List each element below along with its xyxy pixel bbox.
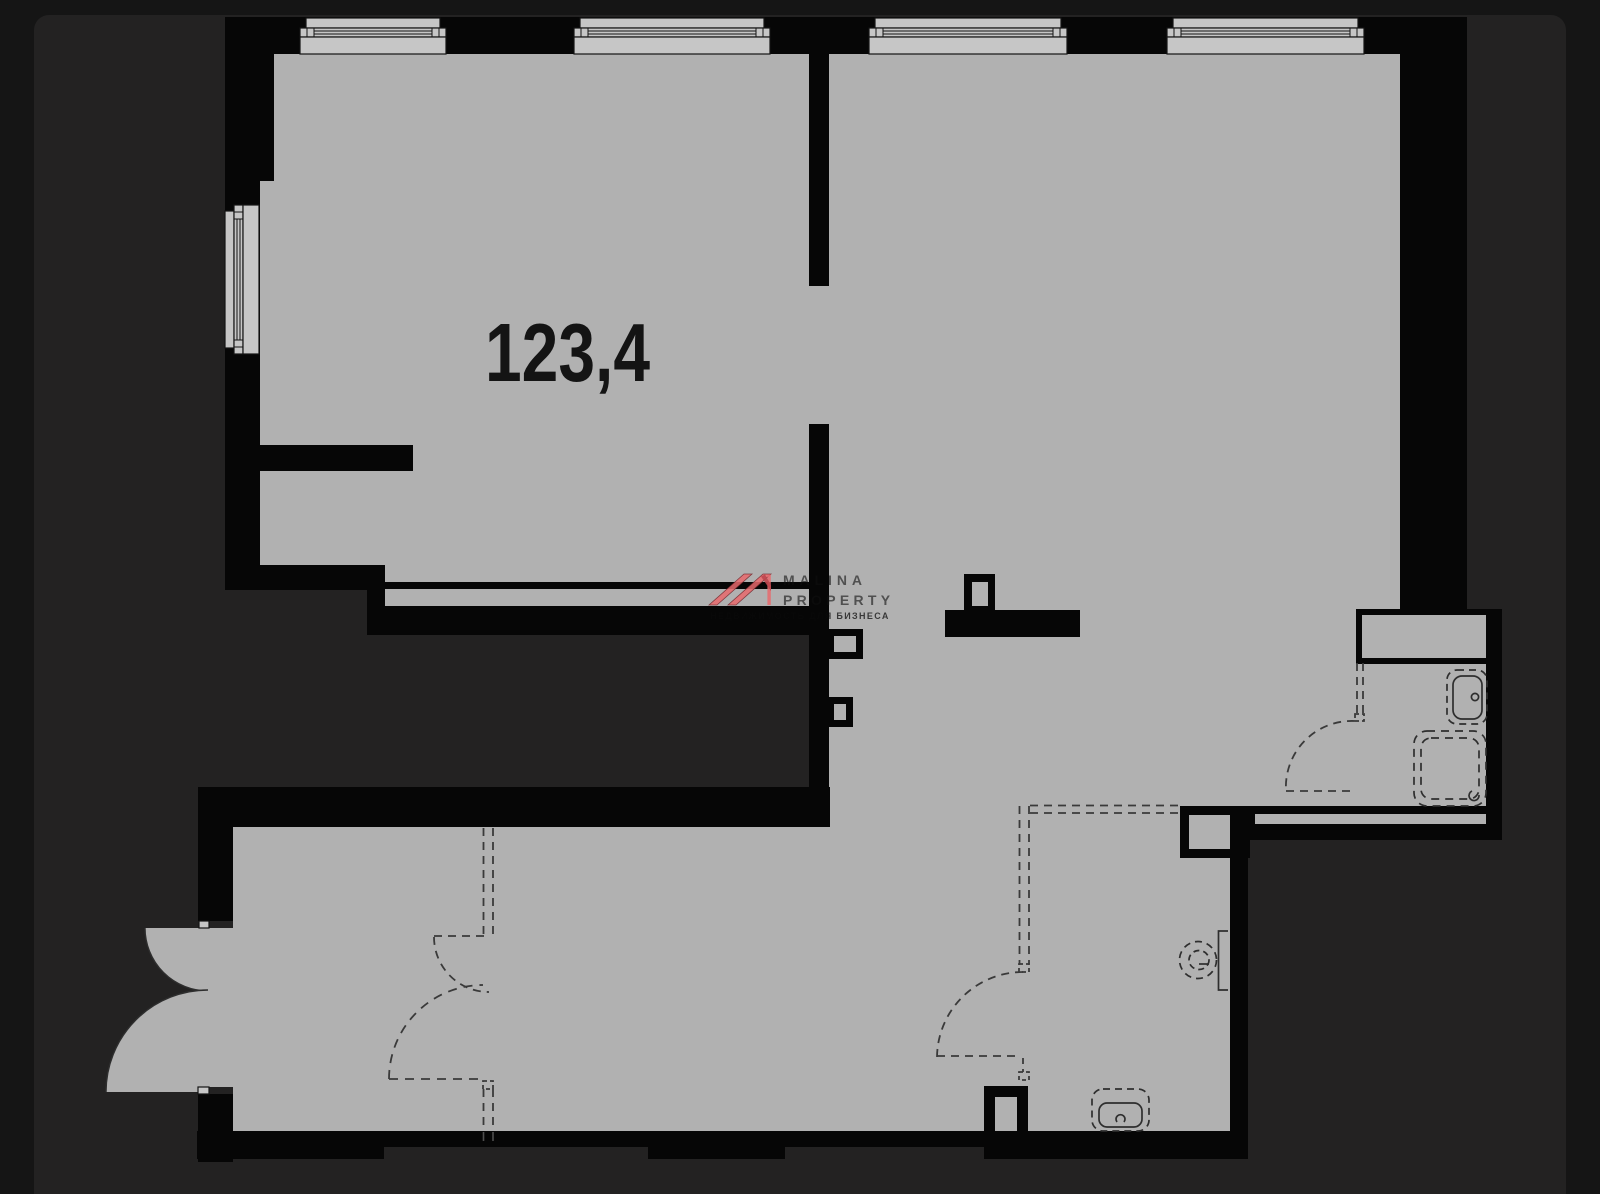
- svg-text:PROPERTY: PROPERTY: [783, 592, 894, 608]
- svg-text:НЕДВИЖИМОСТЬ ДЛЯ БИЗНЕСА: НЕДВИЖИМОСТЬ ДЛЯ БИЗНЕСА: [710, 611, 890, 621]
- svg-text:MALINA: MALINA: [783, 572, 867, 588]
- svg-text:123,4: 123,4: [485, 306, 650, 399]
